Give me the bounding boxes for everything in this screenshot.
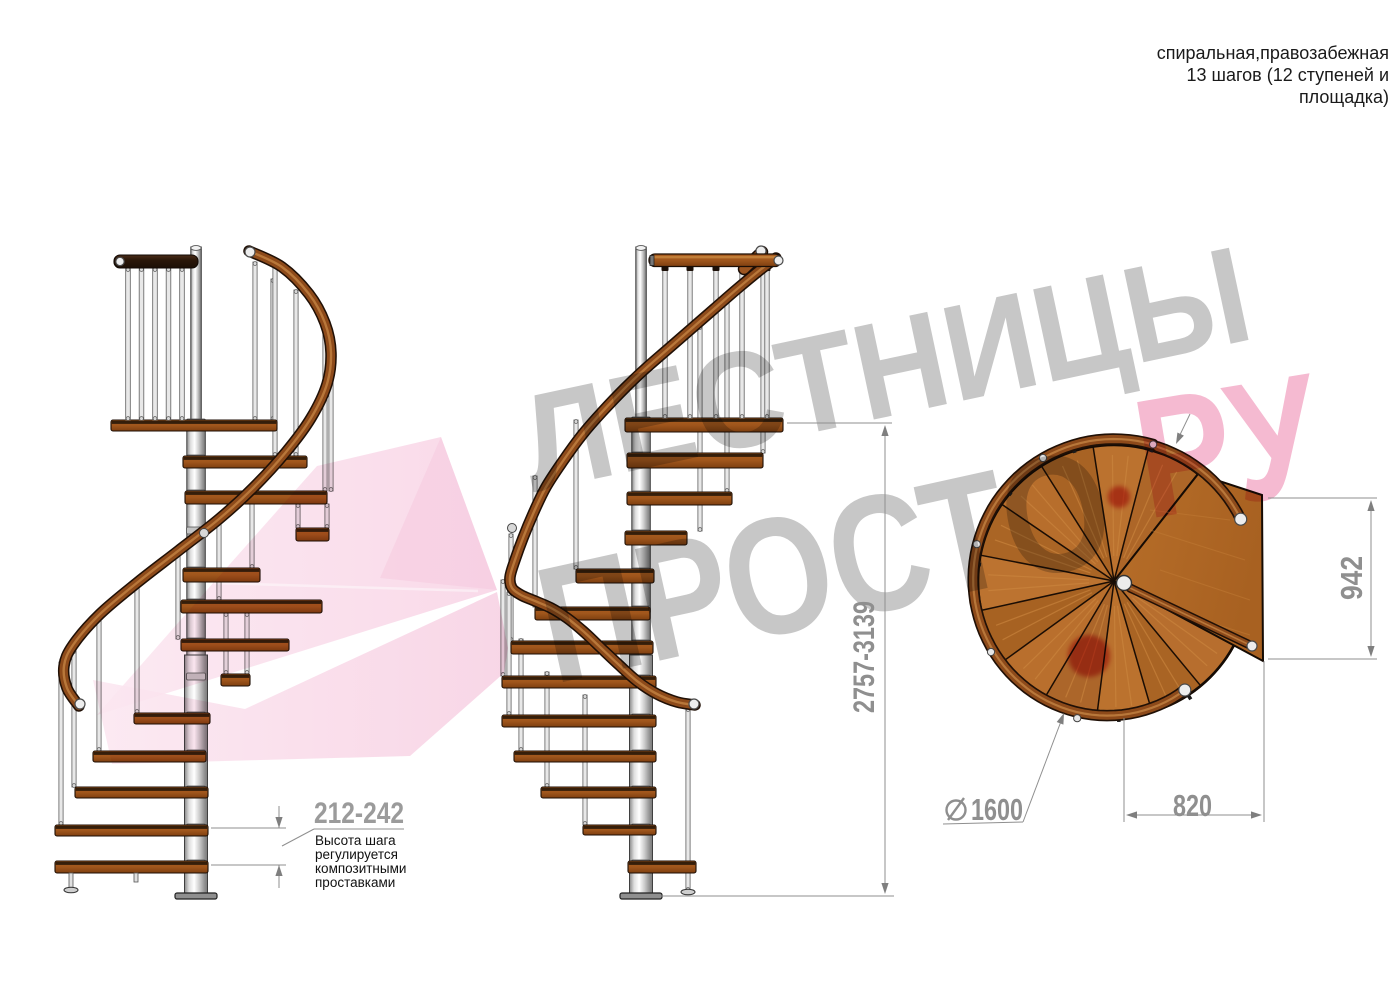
svg-text:РУ: РУ bbox=[1122, 338, 1336, 556]
svg-text:спиральная,правозабежная13 шаг: спиральная,правозабежная13 шагов (12 сту… bbox=[1157, 43, 1389, 107]
svg-text:212-242: 212-242 bbox=[314, 797, 404, 830]
svg-text:942: 942 bbox=[1334, 556, 1369, 600]
svg-text:820: 820 bbox=[1173, 788, 1212, 823]
svg-text:2757-3139: 2757-3139 bbox=[848, 601, 881, 713]
svg-text:Высота шагарегулируетсякомпози: Высота шагарегулируетсякомпозитнымипрост… bbox=[315, 833, 406, 890]
